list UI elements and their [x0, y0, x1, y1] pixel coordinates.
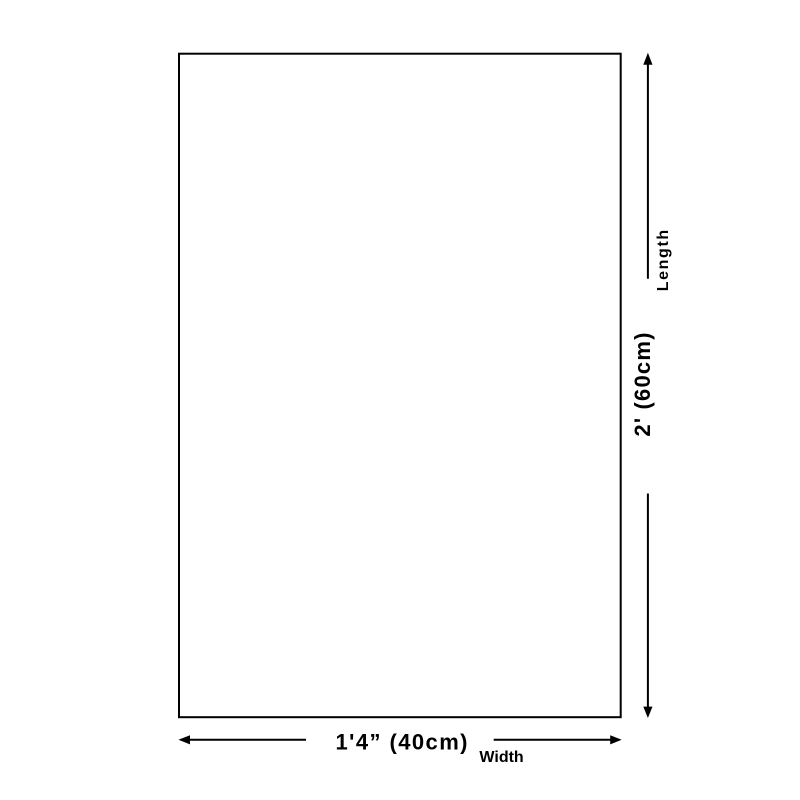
svg-text:1'4” (40cm): 1'4” (40cm)	[336, 730, 468, 755]
svg-text:Width: Width	[479, 749, 523, 766]
svg-text:2' (60cm): 2' (60cm)	[630, 333, 655, 437]
svg-text:Length: Length	[655, 230, 672, 292]
